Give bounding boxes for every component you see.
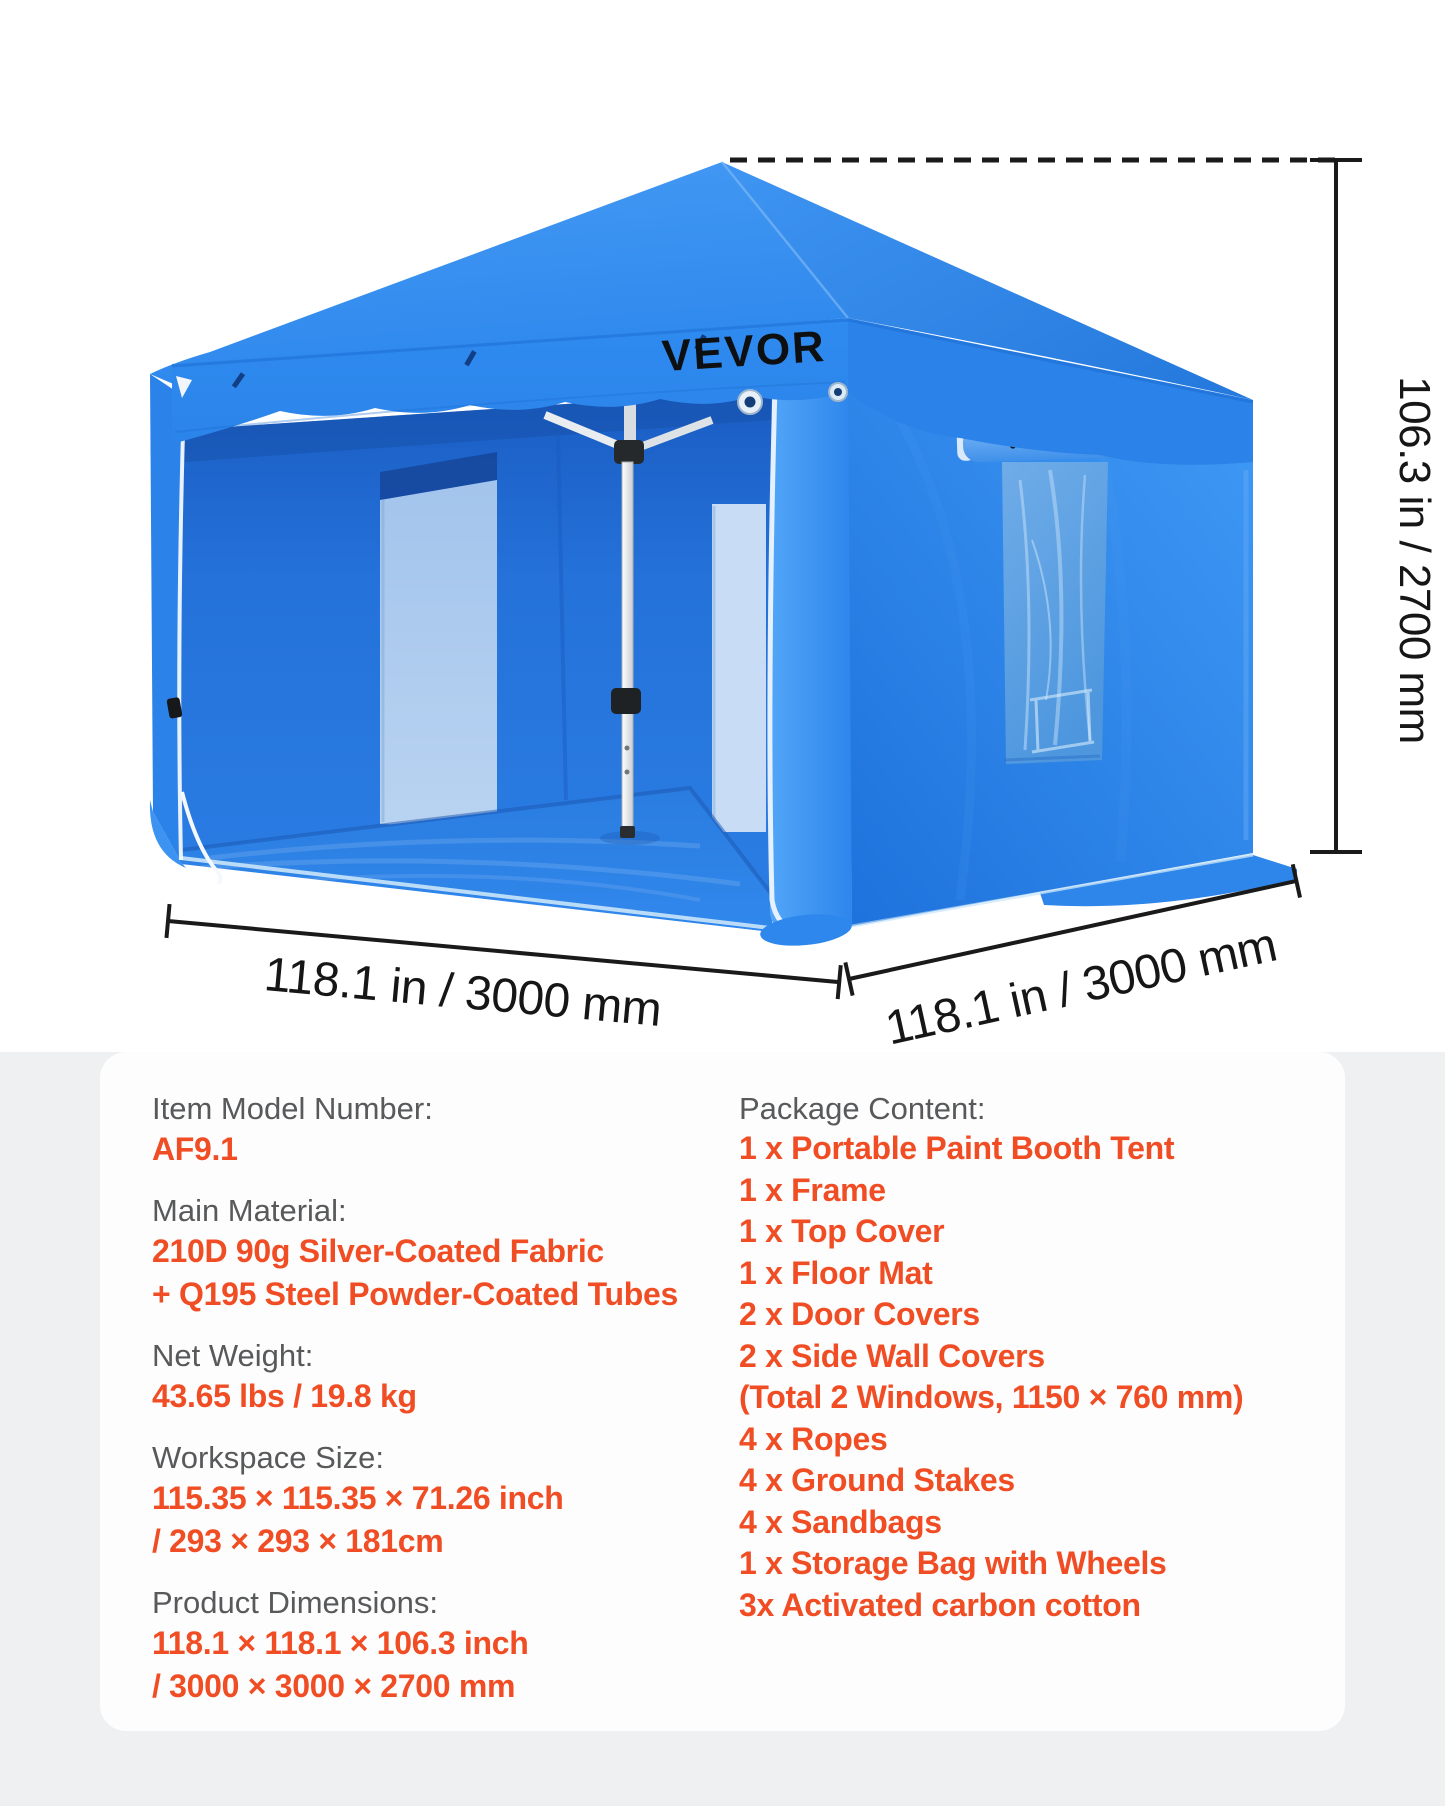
package-item: 4 x Ground Stakes [739,1460,1339,1502]
spec-group-material: Main Material: 210D 90g Silver-Coated Fa… [152,1192,712,1316]
width-dimension-label-right: 118.1 in / 3000 mm [881,918,1281,1052]
spec-value: 115.35 × 115.35 × 71.26 inch [152,1477,712,1520]
spec-group-workspace: Workspace Size: 115.35 × 115.35 × 71.26 … [152,1439,712,1563]
brand-logo: VEVOR [661,322,828,381]
side-wall-window [1002,462,1108,764]
spec-value: AF9.1 [152,1128,712,1171]
spec-label: Net Weight: [152,1337,712,1375]
package-content-list: 1 x Portable Paint Booth Tent 1 x Frame … [739,1128,1339,1626]
tent-interior [180,390,772,932]
spec-column-left: Item Model Number: AF9.1 Main Material: … [152,1090,712,1729]
spec-value: 210D 90g Silver-Coated Fabric [152,1230,712,1273]
package-item: 1 x Storage Bag with Wheels [739,1543,1339,1585]
spec-label: Item Model Number: [152,1090,712,1128]
package-item: 3x Activated carbon cotton [739,1585,1339,1627]
product-spec-image: VEVOR 106.3 in / 2700 mm 118.1 [0,0,1445,1806]
front-corner-pole-wrap [759,334,854,950]
spec-label: Product Dimensions: [152,1584,712,1622]
interior-back-window [712,504,766,832]
package-content-label: Package Content: [739,1090,1339,1128]
pole-foot [620,826,635,838]
grommet [738,390,762,414]
package-item: 2 x Door Covers [739,1294,1339,1336]
spec-value: / 3000 × 3000 × 2700 mm [152,1665,712,1708]
package-item: 1 x Frame [739,1170,1339,1212]
height-dimension-line [1310,160,1362,852]
height-dimension-label: 106.3 in / 2700 mm [1390,376,1439,744]
spec-label: Workspace Size: [152,1439,712,1477]
spec-group-model: Item Model Number: AF9.1 [152,1090,712,1171]
spec-section-background: Item Model Number: AF9.1 Main Material: … [0,1052,1445,1806]
spec-card: Item Model Number: AF9.1 Main Material: … [100,1052,1345,1731]
grommet [829,383,847,401]
spec-group-weight: Net Weight: 43.65 lbs / 19.8 kg [152,1337,712,1418]
spec-value: + Q195 Steel Powder-Coated Tubes [152,1273,712,1316]
package-item: 1 x Portable Paint Booth Tent [739,1128,1339,1170]
package-item: 4 x Ropes [739,1419,1339,1461]
spec-group-dimensions: Product Dimensions: 118.1 × 118.1 × 106.… [152,1584,712,1708]
package-item: (Total 2 Windows, 1150 × 760 mm) [739,1377,1339,1419]
spec-label: Main Material: [152,1192,712,1230]
pole-clamp [611,688,641,714]
tent-dimension-diagram: VEVOR 106.3 in / 2700 mm 118.1 [0,0,1445,1052]
spec-value: 43.65 lbs / 19.8 kg [152,1375,712,1418]
pole-hub [614,440,644,464]
package-item: 1 x Top Cover [739,1211,1339,1253]
spec-column-right: Package Content: 1 x Portable Paint Boot… [739,1090,1339,1626]
spec-value: 118.1 × 118.1 × 106.3 inch [152,1622,712,1665]
package-item: 2 x Side Wall Covers [739,1336,1339,1378]
spec-value: / 293 × 293 × 181cm [152,1520,712,1563]
package-item: 1 x Floor Mat [739,1253,1339,1295]
interior-left-window [380,480,497,828]
package-item: 4 x Sandbags [739,1502,1339,1544]
